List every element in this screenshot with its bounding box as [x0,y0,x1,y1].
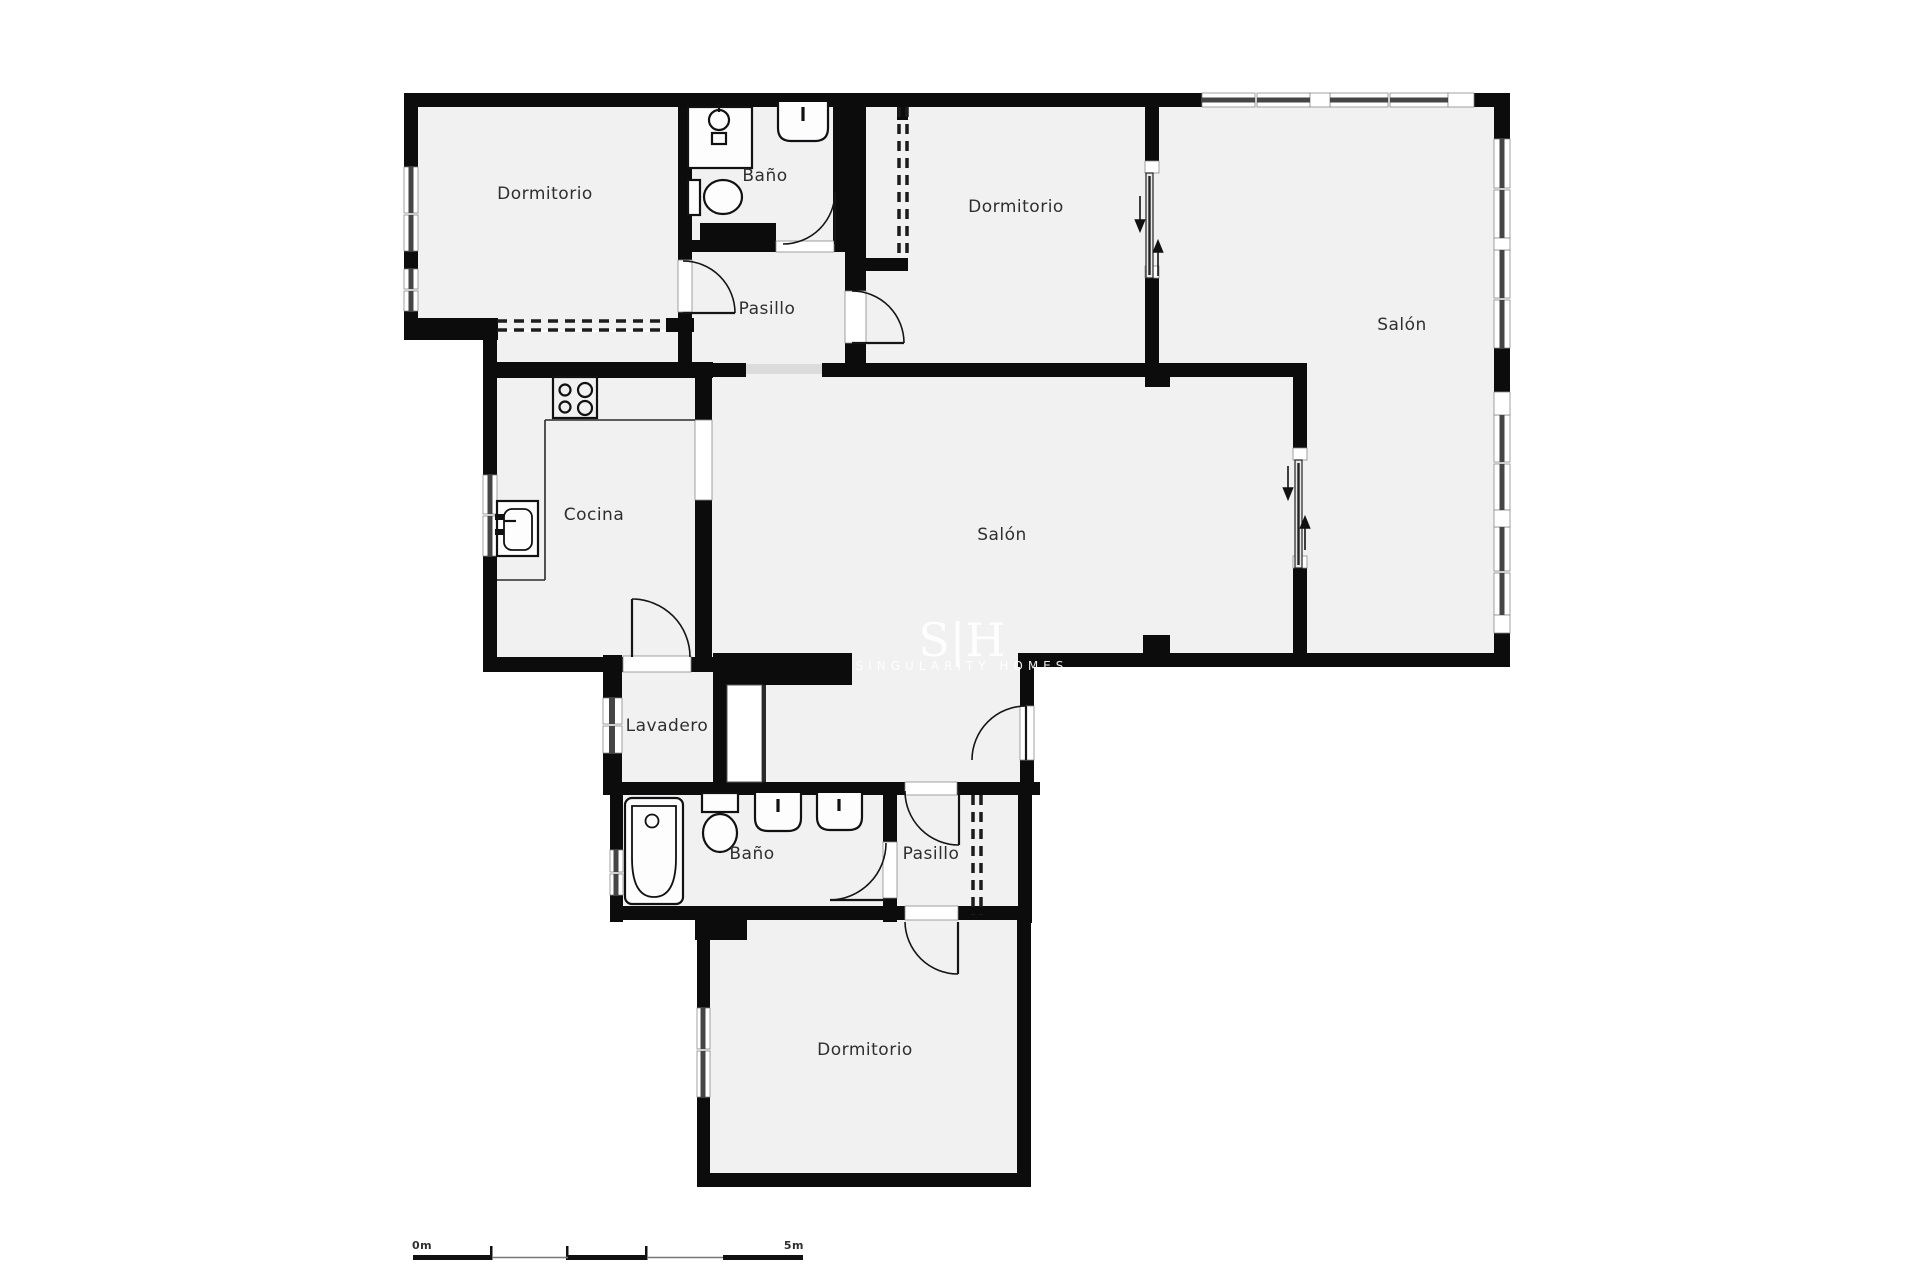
wall [483,362,713,378]
room-label-dormitorio-tm: Dormitorio [968,197,1064,217]
window-glass [1257,98,1310,103]
scale-label-start: 0m [412,1239,432,1252]
window-glass [1390,98,1448,103]
opening [695,420,712,500]
ventilation-shaft [727,685,762,782]
window-glass [701,1008,706,1049]
opening [1145,161,1159,173]
opening [623,656,691,672]
wall [1017,920,1031,1187]
floor-plan-page: S|HSINGULARITY HOMESDormitorioBañoPasill… [0,0,1920,1280]
threshold-step [746,364,822,374]
shaft-wall-layer [762,685,766,782]
wall [695,378,712,420]
window-glass [701,1051,706,1097]
opening [845,291,866,343]
room-label-dormitorio-tl: Dormitorio [497,184,593,204]
window-glass [409,269,414,289]
threshold-step-layer [746,364,822,374]
wall [700,223,776,252]
wall [858,363,1151,377]
shaft-wall [762,685,766,782]
opening [1494,238,1510,250]
wall [1151,363,1307,377]
toilet-bowl-icon [704,180,742,214]
opening [1494,510,1510,527]
wall [1494,348,1510,392]
room-label-pasillo-top: Pasillo [739,299,796,319]
wall [1143,635,1170,653]
toilet-tank-icon [702,793,738,812]
window-glass [1500,139,1505,188]
wall [1158,93,1202,107]
room-label-lavadero: Lavadero [626,716,709,736]
wall [695,500,712,672]
scale-bar [723,1255,803,1260]
wall [483,657,624,672]
opening [776,241,834,252]
shower-tap-icon [709,110,729,130]
window-glass [1500,190,1505,238]
opening [1293,448,1307,460]
wall [833,93,866,252]
scale-bar-layer [413,1246,803,1260]
scale-label-end: 5m [784,1239,804,1252]
wall [610,795,623,850]
wall [697,1173,1028,1187]
window-glass [614,850,619,872]
window-glass [1500,464,1505,510]
window-glass [409,291,414,311]
wall [1293,363,1307,448]
room-label-bano-bottom: Baño [729,844,774,864]
washbasin-icon [817,793,862,830]
toilet-tank-icon [688,180,700,215]
room-label-salon-center: Salón [977,525,1027,545]
wall [483,332,497,475]
opening [905,906,958,920]
opening [1494,615,1510,633]
wall [845,252,866,291]
opening [905,782,957,795]
wall [1018,653,1510,667]
wall [1018,788,1032,923]
opening [1494,392,1510,415]
room-salon-center [705,370,1300,789]
window-glass [1500,250,1505,298]
wall [883,788,897,842]
window-glass [609,698,615,724]
wall [603,655,622,698]
floor-plan-canvas: S|HSINGULARITY HOMESDormitorioBañoPasill… [0,0,1920,1280]
window-glass [614,874,619,895]
watermark-text: SINGULARITY HOMES [856,659,1069,673]
room-label-salon-right: Salón [1377,315,1427,335]
wall [678,240,702,252]
window-glass [1202,98,1255,103]
wall [697,940,710,1008]
kitchen-tap-icon [495,529,504,535]
room-label-cocina: Cocina [564,505,625,525]
window-glass [609,726,615,753]
wall [404,93,418,167]
window-glass [488,516,493,556]
wall [1494,93,1510,139]
room-label-bano-top: Baño [742,166,787,186]
scale-bar [568,1255,647,1260]
kitchen-tap-icon [495,514,504,520]
room-label-pasillo-bottom: Pasillo [903,844,960,864]
wall [712,363,746,377]
wall [713,653,852,685]
wall [866,258,908,271]
opening [1448,93,1474,107]
wall [678,312,692,365]
wall [404,251,418,269]
window-glass [409,215,414,251]
wall [1293,568,1307,667]
wall [695,912,747,940]
window-glass [1500,415,1505,462]
window-glass [1330,98,1388,103]
window-glass [1500,300,1505,348]
wall [483,556,497,672]
window-glass [409,167,414,213]
window-glass [488,475,493,514]
opening [678,260,692,312]
room-label-dormitorio-bottom: Dormitorio [817,1040,913,1060]
window-glass [1500,573,1505,615]
scale-bar [413,1255,492,1260]
window-glass [1500,527,1505,571]
opening [1310,93,1330,107]
wall [713,685,727,782]
wall [1145,278,1159,377]
wall [610,906,905,920]
shaft-layer [727,685,762,782]
room [411,100,688,330]
